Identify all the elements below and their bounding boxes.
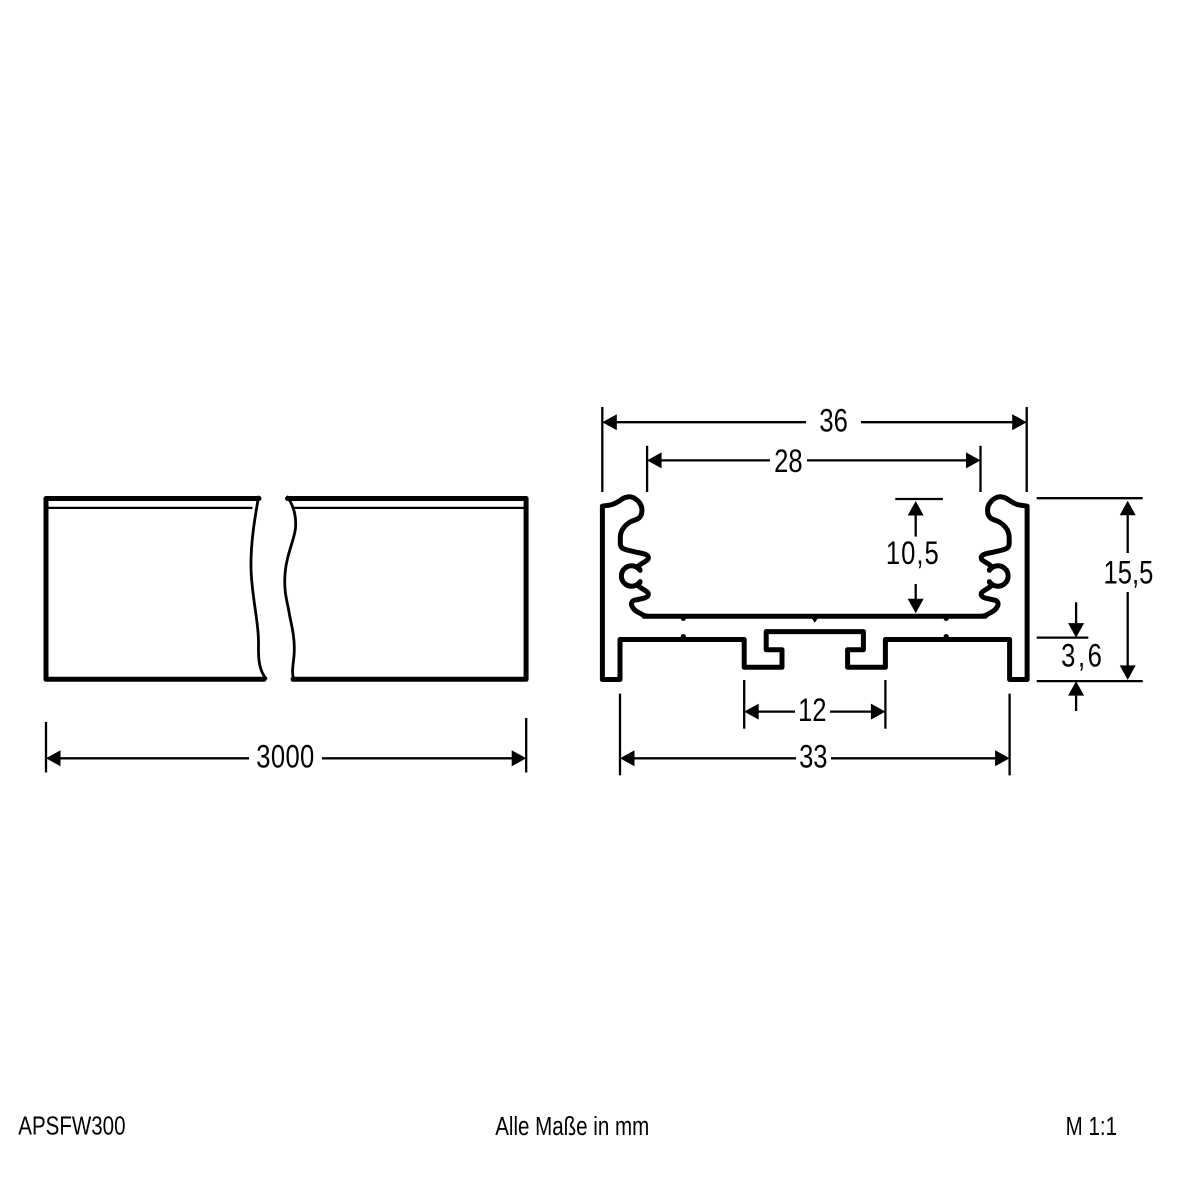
svg-text:3,6: 3,6 xyxy=(1061,639,1102,674)
svg-text:M 1:1: M 1:1 xyxy=(1066,1111,1117,1140)
svg-text:33: 33 xyxy=(799,740,827,775)
svg-text:3000: 3000 xyxy=(256,740,314,775)
svg-text:10,5: 10,5 xyxy=(886,536,939,571)
svg-text:15,5: 15,5 xyxy=(1103,556,1153,591)
svg-text:Alle Maße in mm: Alle Maße in mm xyxy=(495,1111,649,1140)
svg-text:28: 28 xyxy=(774,445,802,480)
svg-text:12: 12 xyxy=(798,693,826,728)
svg-text:36: 36 xyxy=(819,404,847,439)
svg-text:APSFW300: APSFW300 xyxy=(18,1111,125,1140)
